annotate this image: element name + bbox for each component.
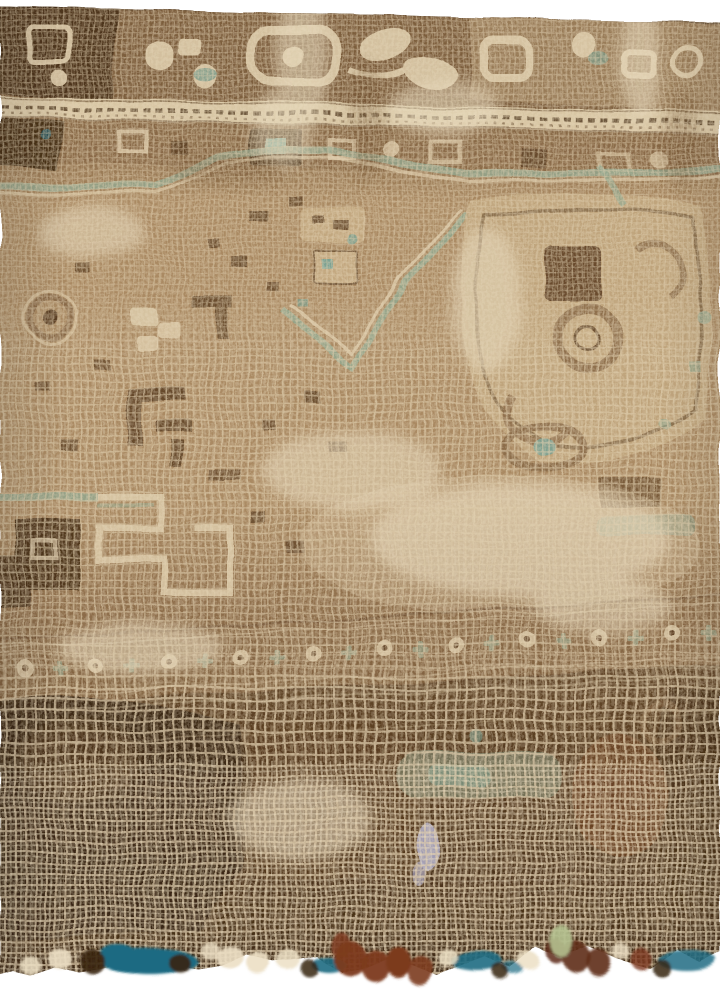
side-shading <box>0 0 720 1008</box>
rug-illustration <box>0 0 720 1008</box>
rug <box>0 0 720 1008</box>
rug-photo: Distressed antique hand-knotted rug show… <box>0 0 720 1008</box>
